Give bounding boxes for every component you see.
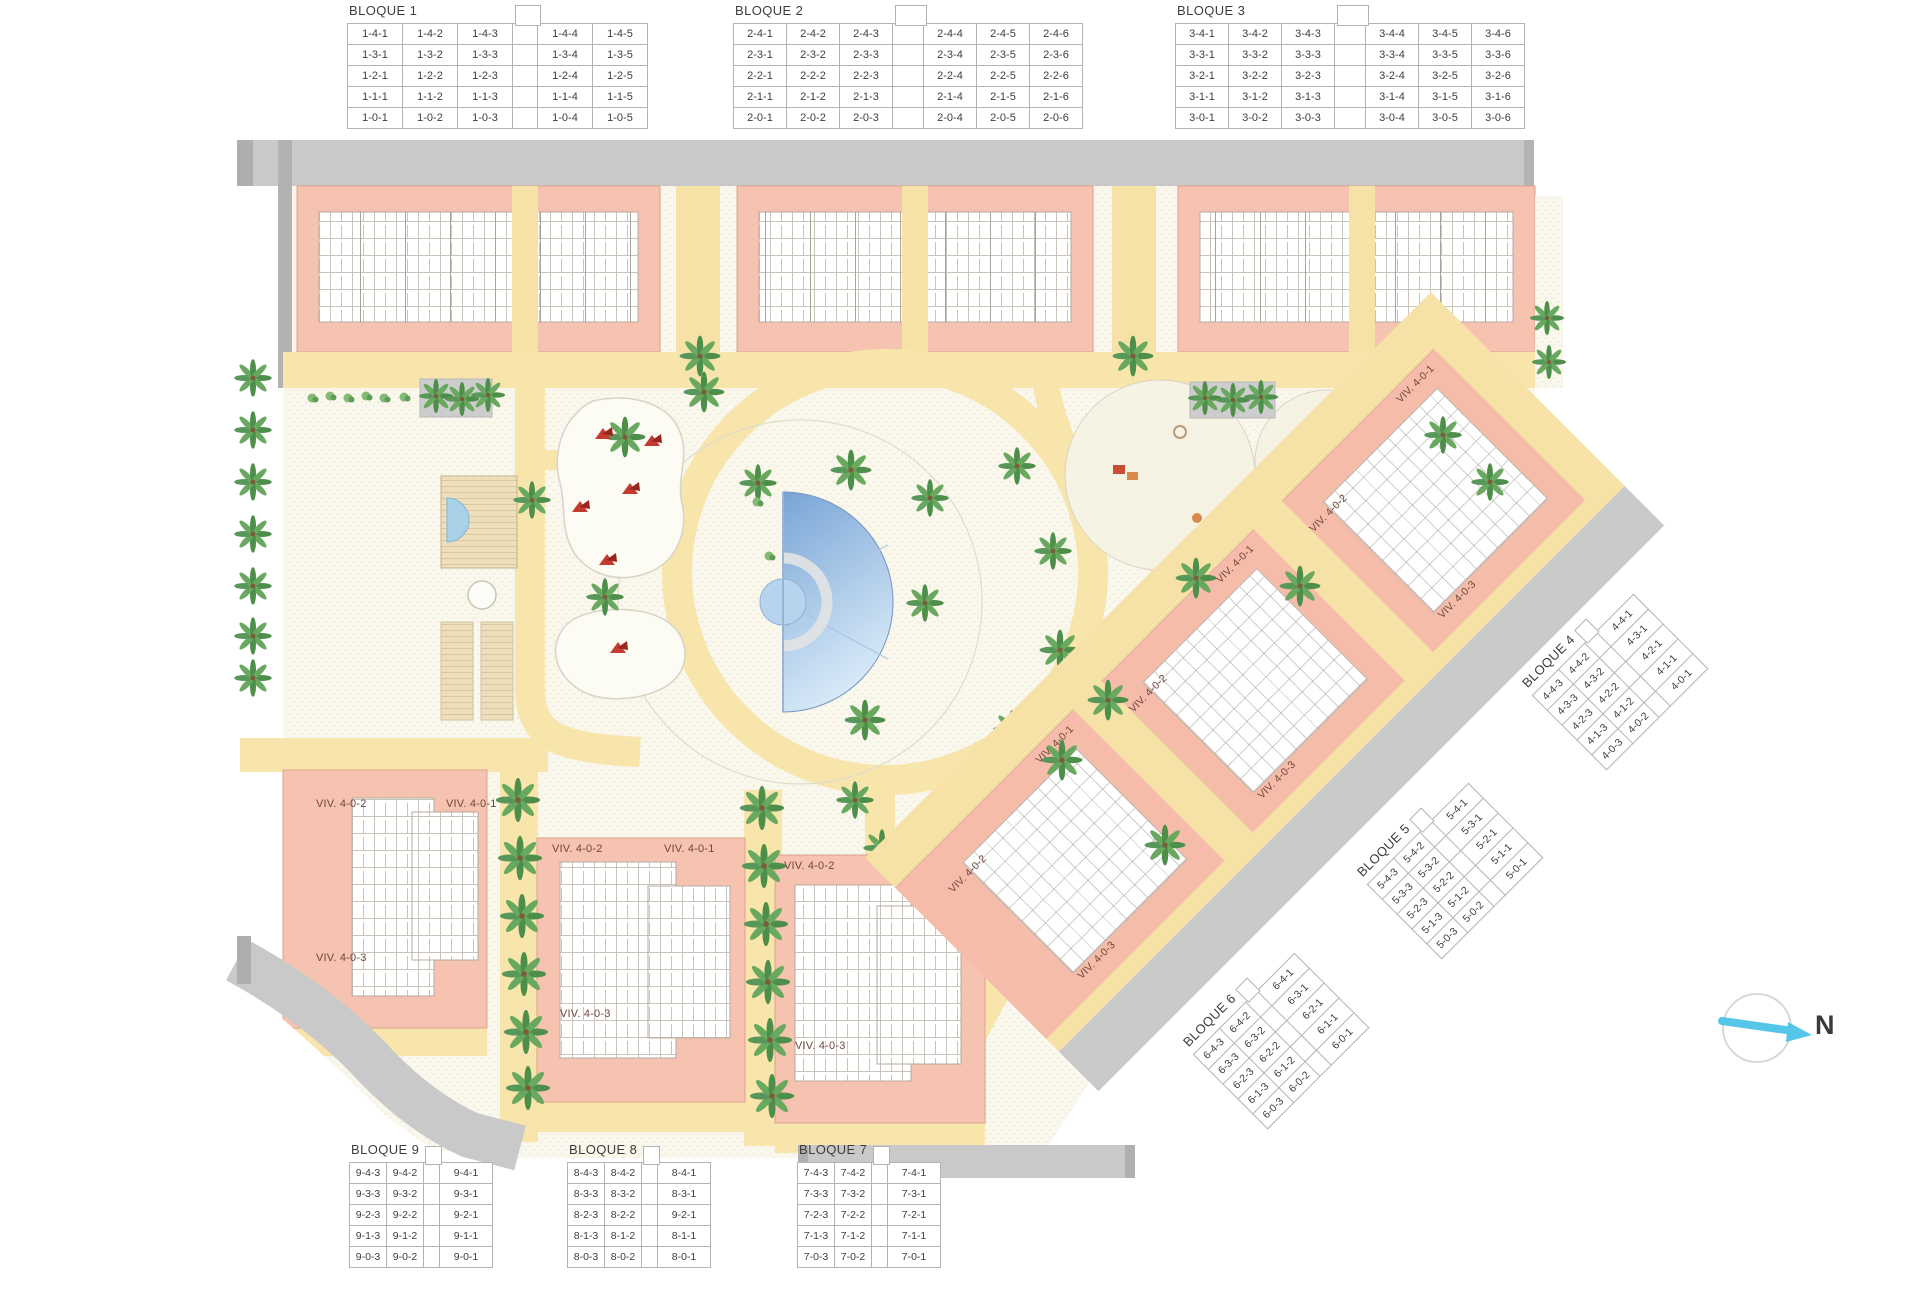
unit-cell: 8-0-2 <box>605 1247 642 1268</box>
bloque-2-legend: BLOQUE 2 2-4-12-4-22-4-32-4-42-4-52-4-62… <box>733 3 1083 129</box>
unit-cell: 1-3-4 <box>538 45 593 66</box>
gap-cell <box>872 1226 888 1247</box>
unit-cell: 7-1-1 <box>888 1226 941 1247</box>
unit-cell: 3-1-2 <box>1229 87 1282 108</box>
gap-cell <box>513 24 538 45</box>
unit-row: 2-0-12-0-22-0-32-0-42-0-52-0-6 <box>734 108 1083 129</box>
palm-tree-icon <box>445 382 479 416</box>
gap-cell <box>513 87 538 108</box>
unit-cell: 8-3-2 <box>605 1184 642 1205</box>
unit-cell: 9-4-3 <box>350 1163 387 1184</box>
palm-tree-icon <box>684 372 725 413</box>
palm-tree-icon <box>746 960 790 1004</box>
unit-cell: 2-1-5 <box>977 87 1030 108</box>
unit-cell: 2-0-2 <box>787 108 840 129</box>
unit-cell: 2-3-2 <box>787 45 840 66</box>
unit-cell: 9-2-2 <box>387 1205 424 1226</box>
bloque-9-title: BLOQUE 9 <box>351 1142 493 1157</box>
unit-row: 8-3-38-3-28-3-1 <box>568 1184 711 1205</box>
palm-tree-icon <box>742 844 786 888</box>
unit-cell: 8-3-3 <box>568 1184 605 1205</box>
unit-label: VIV. 4-0-3 <box>560 1008 611 1020</box>
unit-cell: 7-4-3 <box>798 1163 835 1184</box>
unit-cell: 2-2-4 <box>924 66 977 87</box>
unit-row: 9-0-39-0-29-0-1 <box>350 1247 493 1268</box>
palm-tree-icon <box>1113 336 1154 377</box>
unit-cell: 9-1-2 <box>387 1226 424 1247</box>
unit-cell: 3-4-2 <box>1229 24 1282 45</box>
gap-cell <box>893 108 924 129</box>
unit-cell: 1-2-5 <box>593 66 648 87</box>
unit-row: 8-1-38-1-28-1-1 <box>568 1226 711 1247</box>
unit-row: 7-1-37-1-27-1-1 <box>798 1226 941 1247</box>
unit-cell: 1-3-3 <box>458 45 513 66</box>
unit-cell: 1-2-2 <box>403 66 458 87</box>
palm-tree-icon <box>906 584 943 621</box>
round-feature <box>468 581 496 609</box>
unit-cell: 9-1-1 <box>440 1226 493 1247</box>
townhouse-row-block3 <box>1178 186 1535 352</box>
unit-cell: 8-2-3 <box>568 1205 605 1226</box>
palm-tree-icon <box>496 778 540 822</box>
unit-cell: 9-3-3 <box>350 1184 387 1205</box>
north-arrow-head-icon <box>1786 1022 1812 1042</box>
unit-cell: 9-4-1 <box>440 1163 493 1184</box>
gap-cell <box>642 1184 658 1205</box>
palm-tree-icon <box>1532 345 1566 379</box>
unit-cell: 8-0-1 <box>658 1247 711 1268</box>
gap-cell <box>872 1163 888 1184</box>
building-block8 <box>537 838 745 1102</box>
unit-row: 3-3-13-3-23-3-33-3-43-3-53-3-6 <box>1176 45 1525 66</box>
palm-tree-icon <box>831 450 872 491</box>
gap-cell <box>513 66 538 87</box>
unit-row: 3-2-13-2-23-2-33-2-43-2-53-2-6 <box>1176 66 1525 87</box>
legend-gap-box <box>643 1146 660 1165</box>
gap-cell <box>1335 24 1366 45</box>
palm-tree-icon <box>845 700 886 741</box>
unit-cell: 3-2-2 <box>1229 66 1282 87</box>
unit-cell: 9-2-1 <box>440 1205 493 1226</box>
palm-tree-icon <box>234 617 271 654</box>
unit-cell: 1-3-2 <box>403 45 458 66</box>
unit-cell: 3-4-4 <box>1366 24 1419 45</box>
townhouse-row-block1 <box>297 186 660 352</box>
gap-cell <box>872 1247 888 1268</box>
unit-cell: 2-0-5 <box>977 108 1030 129</box>
unit-cell: 2-0-3 <box>840 108 893 129</box>
gap-cell <box>1335 108 1366 129</box>
unit-label: VIV. 4-0-3 <box>795 1040 846 1052</box>
unit-cell: 3-3-3 <box>1282 45 1335 66</box>
unit-row: 9-3-39-3-29-3-1 <box>350 1184 493 1205</box>
unit-cell: 1-3-5 <box>593 45 648 66</box>
unit-cell: 3-3-6 <box>1472 45 1525 66</box>
bloque-7-legend: BLOQUE 7 7-4-37-4-27-4-17-3-37-3-27-3-17… <box>797 1142 941 1268</box>
unit-row: 1-1-11-1-21-1-31-1-41-1-5 <box>348 87 648 108</box>
unit-cell: 2-4-4 <box>924 24 977 45</box>
unit-cell: 2-2-5 <box>977 66 1030 87</box>
unit-row: 8-0-38-0-28-0-1 <box>568 1247 711 1268</box>
palm-tree-icon <box>513 481 550 518</box>
unit-cell: 1-0-2 <box>403 108 458 129</box>
unit-cell: 1-0-1 <box>348 108 403 129</box>
unit-row: 8-2-38-2-29-2-1 <box>568 1205 711 1226</box>
unit-cell: 2-0-1 <box>734 108 787 129</box>
unit-cell: 3-0-3 <box>1282 108 1335 129</box>
gap-cell <box>893 24 924 45</box>
unit-cell: 3-3-2 <box>1229 45 1282 66</box>
unit-cell: 3-1-5 <box>1419 87 1472 108</box>
bloque-7-table: 7-4-37-4-27-4-17-3-37-3-27-3-17-2-37-2-2… <box>797 1162 941 1268</box>
unit-cell: 9-3-1 <box>440 1184 493 1205</box>
unit-cell: 1-1-1 <box>348 87 403 108</box>
unit-cell: 1-4-3 <box>458 24 513 45</box>
unit-label: VIV. 4-0-1 <box>446 798 497 810</box>
unit-cell: 2-2-1 <box>734 66 787 87</box>
palm-tree-icon <box>500 894 544 938</box>
unit-cell: 1-4-4 <box>538 24 593 45</box>
gap-cell <box>872 1184 888 1205</box>
unit-cell: 2-3-4 <box>924 45 977 66</box>
gap-cell <box>424 1247 440 1268</box>
gap-cell <box>513 45 538 66</box>
bloque-1-table: 1-4-11-4-21-4-31-4-41-4-51-3-11-3-21-3-3… <box>347 23 648 129</box>
legend-gap-box <box>515 5 541 26</box>
bloque-2-table: 2-4-12-4-22-4-32-4-42-4-52-4-62-3-12-3-2… <box>733 23 1083 129</box>
unit-cell: 1-0-5 <box>593 108 648 129</box>
palm-tree-icon <box>419 379 453 413</box>
unit-cell: 2-2-2 <box>787 66 840 87</box>
unit-cell: 3-1-4 <box>1366 87 1419 108</box>
bloque-1-legend: BLOQUE 1 1-4-11-4-21-4-31-4-41-4-51-3-11… <box>347 3 648 129</box>
unit-cell: 8-1-2 <box>605 1226 642 1247</box>
palm-tree-icon <box>234 359 271 396</box>
unit-cell: 2-1-1 <box>734 87 787 108</box>
gap-cell <box>642 1163 658 1184</box>
unit-cell: 7-4-1 <box>888 1163 941 1184</box>
palm-tree-icon <box>740 786 784 830</box>
unit-row: 1-4-11-4-21-4-31-4-41-4-5 <box>348 24 648 45</box>
unit-cell: 3-2-6 <box>1472 66 1525 87</box>
unit-cell: 9-1-3 <box>350 1226 387 1247</box>
unit-cell: 7-4-2 <box>835 1163 872 1184</box>
unit-row: 1-0-11-0-21-0-31-0-41-0-5 <box>348 108 648 129</box>
unit-cell: 3-0-1 <box>1176 108 1229 129</box>
palm-tree-icon <box>1188 381 1222 415</box>
unit-cell: 2-1-6 <box>1030 87 1083 108</box>
wooden-deck <box>441 476 517 568</box>
unit-cell: 2-0-4 <box>924 108 977 129</box>
bloque-8-table: 8-4-38-4-28-4-18-3-38-3-28-3-18-2-38-2-2… <box>567 1162 711 1268</box>
gap-cell <box>893 66 924 87</box>
palm-tree-icon <box>586 578 623 615</box>
unit-cell: 9-2-3 <box>350 1205 387 1226</box>
unit-cell: 9-0-3 <box>350 1247 387 1268</box>
unit-cell: 2-3-5 <box>977 45 1030 66</box>
gap-cell <box>872 1205 888 1226</box>
gap-cell <box>424 1163 440 1184</box>
palm-tree-icon <box>471 378 505 412</box>
unit-row: 3-4-13-4-23-4-33-4-43-4-53-4-6 <box>1176 24 1525 45</box>
bloque-3-table: 3-4-13-4-23-4-33-4-43-4-53-4-63-3-13-3-2… <box>1175 23 1525 129</box>
unit-row: 2-2-12-2-22-2-32-2-42-2-52-2-6 <box>734 66 1083 87</box>
unit-cell: 1-1-2 <box>403 87 458 108</box>
unit-cell: 1-2-3 <box>458 66 513 87</box>
unit-row: 7-0-37-0-27-0-1 <box>798 1247 941 1268</box>
unit-cell: 7-0-3 <box>798 1247 835 1268</box>
unit-row: 7-4-37-4-27-4-1 <box>798 1163 941 1184</box>
unit-cell: 8-4-2 <box>605 1163 642 1184</box>
unit-cell: 1-2-4 <box>538 66 593 87</box>
unit-cell: 2-4-1 <box>734 24 787 45</box>
palm-tree-icon <box>506 1066 550 1110</box>
unit-cell: 1-2-1 <box>348 66 403 87</box>
bloque-3-legend: BLOQUE 3 3-4-13-4-23-4-33-4-43-4-53-4-63… <box>1175 3 1525 129</box>
unit-cell: 3-1-1 <box>1176 87 1229 108</box>
unit-cell: 3-4-3 <box>1282 24 1335 45</box>
unit-cell: 2-2-6 <box>1030 66 1083 87</box>
unit-row: 3-0-13-0-23-0-33-0-43-0-53-0-6 <box>1176 108 1525 129</box>
unit-cell: 1-4-5 <box>593 24 648 45</box>
gap-cell <box>642 1226 658 1247</box>
unit-row: 2-4-12-4-22-4-32-4-42-4-52-4-6 <box>734 24 1083 45</box>
palm-tree-icon <box>504 1010 548 1054</box>
unit-cell: 9-2-1 <box>658 1205 711 1226</box>
gap-cell <box>642 1247 658 1268</box>
unit-label: VIV. 4-0-2 <box>784 860 835 872</box>
unit-row: 7-2-37-2-27-2-1 <box>798 1205 941 1226</box>
palm-tree-icon <box>680 336 721 377</box>
unit-cell: 2-4-3 <box>840 24 893 45</box>
unit-cell: 1-3-1 <box>348 45 403 66</box>
unit-cell: 2-3-1 <box>734 45 787 66</box>
palm-tree-icon <box>498 836 542 880</box>
bloque-8-title: BLOQUE 8 <box>569 1142 711 1157</box>
palm-tree-icon <box>605 417 646 458</box>
unit-cell: 9-0-1 <box>440 1247 493 1268</box>
unit-cell: 3-3-4 <box>1366 45 1419 66</box>
unit-row: 3-1-13-1-23-1-33-1-43-1-53-1-6 <box>1176 87 1525 108</box>
palm-tree-icon <box>502 952 546 996</box>
north-compass <box>1722 994 1812 1062</box>
unit-row: 1-2-11-2-21-2-31-2-41-2-5 <box>348 66 648 87</box>
bloque-7-title: BLOQUE 7 <box>799 1142 941 1157</box>
legend-gap-box <box>895 5 927 26</box>
unit-row: 2-1-12-1-22-1-32-1-42-1-52-1-6 <box>734 87 1083 108</box>
unit-cell: 7-0-1 <box>888 1247 941 1268</box>
palm-tree-icon <box>744 902 788 946</box>
bloque-8-legend: BLOQUE 8 8-4-38-4-28-4-18-3-38-3-28-3-18… <box>567 1142 711 1268</box>
palm-tree-icon <box>911 479 948 516</box>
unit-row: 8-4-38-4-28-4-1 <box>568 1163 711 1184</box>
unit-cell: 2-3-3 <box>840 45 893 66</box>
unit-cell: 9-4-2 <box>387 1163 424 1184</box>
unit-cell: 1-0-4 <box>538 108 593 129</box>
gap-cell <box>424 1226 440 1247</box>
unit-cell: 7-0-2 <box>835 1247 872 1268</box>
unit-cell: 1-1-5 <box>593 87 648 108</box>
unit-cell: 3-4-5 <box>1419 24 1472 45</box>
unit-cell: 1-4-2 <box>403 24 458 45</box>
bloque-9-legend: BLOQUE 9 9-4-39-4-29-4-19-3-39-3-29-3-19… <box>349 1142 493 1268</box>
unit-label: VIV. 4-0-2 <box>552 843 603 855</box>
unit-cell: 3-4-6 <box>1472 24 1525 45</box>
gap-cell <box>1335 45 1366 66</box>
palm-tree-icon <box>739 464 776 501</box>
unit-cell: 3-1-6 <box>1472 87 1525 108</box>
unit-cell: 3-1-3 <box>1282 87 1335 108</box>
unit-label: VIV. 4-0-3 <box>316 952 367 964</box>
unit-cell: 2-2-3 <box>840 66 893 87</box>
unit-label: VIV. 4-0-2 <box>316 798 367 810</box>
playground-area-1 <box>557 398 683 578</box>
unit-cell: 7-2-2 <box>835 1205 872 1226</box>
unit-cell: 1-4-1 <box>348 24 403 45</box>
bloque-9-table: 9-4-39-4-29-4-19-3-39-3-29-3-19-2-39-2-2… <box>349 1162 493 1268</box>
unit-cell: 1-1-4 <box>538 87 593 108</box>
unit-cell: 3-0-2 <box>1229 108 1282 129</box>
palm-tree-icon <box>1216 383 1250 417</box>
palm-tree-icon <box>234 567 271 604</box>
unit-row: 9-1-39-1-29-1-1 <box>350 1226 493 1247</box>
palm-tree-icon <box>1244 380 1278 414</box>
gap-cell <box>1335 87 1366 108</box>
palm-tree-icon <box>998 447 1035 484</box>
unit-cell: 2-4-6 <box>1030 24 1083 45</box>
unit-row: 2-3-12-3-22-3-32-3-42-3-52-3-6 <box>734 45 1083 66</box>
north-label: N <box>1815 1010 1835 1041</box>
unit-cell: 9-3-2 <box>387 1184 424 1205</box>
unit-cell: 7-3-3 <box>798 1184 835 1205</box>
unit-cell: 9-0-2 <box>387 1247 424 1268</box>
legend-gap-box <box>873 1146 890 1165</box>
legend-gap-box <box>1337 5 1369 26</box>
unit-label: VIV. 4-0-1 <box>664 843 715 855</box>
townhouse-row-block2 <box>737 186 1093 352</box>
unit-cell: 3-2-5 <box>1419 66 1472 87</box>
unit-cell: 3-0-5 <box>1419 108 1472 129</box>
unit-cell: 2-4-5 <box>977 24 1030 45</box>
unit-cell: 7-3-2 <box>835 1184 872 1205</box>
unit-cell: 3-2-4 <box>1366 66 1419 87</box>
unit-cell: 8-2-2 <box>605 1205 642 1226</box>
unit-cell: 8-4-1 <box>658 1163 711 1184</box>
unit-row: 7-3-37-3-27-3-1 <box>798 1184 941 1205</box>
legend-gap-box <box>425 1146 442 1165</box>
gap-cell <box>893 45 924 66</box>
palm-tree-icon <box>750 1074 794 1118</box>
unit-cell: 3-0-4 <box>1366 108 1419 129</box>
unit-cell: 7-2-1 <box>888 1205 941 1226</box>
unit-cell: 3-3-1 <box>1176 45 1229 66</box>
gap-cell <box>893 87 924 108</box>
unit-cell: 3-0-6 <box>1472 108 1525 129</box>
unit-cell: 1-0-3 <box>458 108 513 129</box>
unit-cell: 8-4-3 <box>568 1163 605 1184</box>
playground-area-2 <box>556 609 685 698</box>
unit-cell: 2-3-6 <box>1030 45 1083 66</box>
gap-cell <box>642 1205 658 1226</box>
unit-cell: 1-1-3 <box>458 87 513 108</box>
unit-cell: 3-2-1 <box>1176 66 1229 87</box>
unit-cell: 7-2-3 <box>798 1205 835 1226</box>
gap-cell <box>424 1205 440 1226</box>
unit-row: 9-4-39-4-29-4-1 <box>350 1163 493 1184</box>
palm-tree-icon <box>234 411 271 448</box>
unit-cell: 2-4-2 <box>787 24 840 45</box>
unit-cell: 3-2-3 <box>1282 66 1335 87</box>
gap-cell <box>513 108 538 129</box>
unit-cell: 3-4-1 <box>1176 24 1229 45</box>
palm-tree-icon <box>1034 532 1071 569</box>
gap-cell <box>1335 66 1366 87</box>
unit-cell: 2-1-2 <box>787 87 840 108</box>
unit-row: 9-2-39-2-29-2-1 <box>350 1205 493 1226</box>
unit-cell: 8-3-1 <box>658 1184 711 1205</box>
bloque-1-title: BLOQUE 1 <box>349 3 648 18</box>
palm-tree-icon <box>234 515 271 552</box>
unit-cell: 7-1-3 <box>798 1226 835 1247</box>
unit-cell: 3-3-5 <box>1419 45 1472 66</box>
unit-cell: 2-1-3 <box>840 87 893 108</box>
unit-cell: 8-0-3 <box>568 1247 605 1268</box>
unit-cell: 2-1-4 <box>924 87 977 108</box>
palm-tree-icon <box>836 781 873 818</box>
unit-row: 1-3-11-3-21-3-31-3-41-3-5 <box>348 45 648 66</box>
unit-cell: 2-0-6 <box>1030 108 1083 129</box>
palm-tree-icon <box>234 659 271 696</box>
gap-cell <box>424 1184 440 1205</box>
unit-cell: 8-1-1 <box>658 1226 711 1247</box>
palm-tree-icon <box>234 463 271 500</box>
palm-tree-icon <box>748 1018 792 1062</box>
unit-cell: 7-1-2 <box>835 1226 872 1247</box>
unit-cell: 7-3-1 <box>888 1184 941 1205</box>
unit-cell: 8-1-3 <box>568 1226 605 1247</box>
palm-tree-icon <box>1530 301 1564 335</box>
